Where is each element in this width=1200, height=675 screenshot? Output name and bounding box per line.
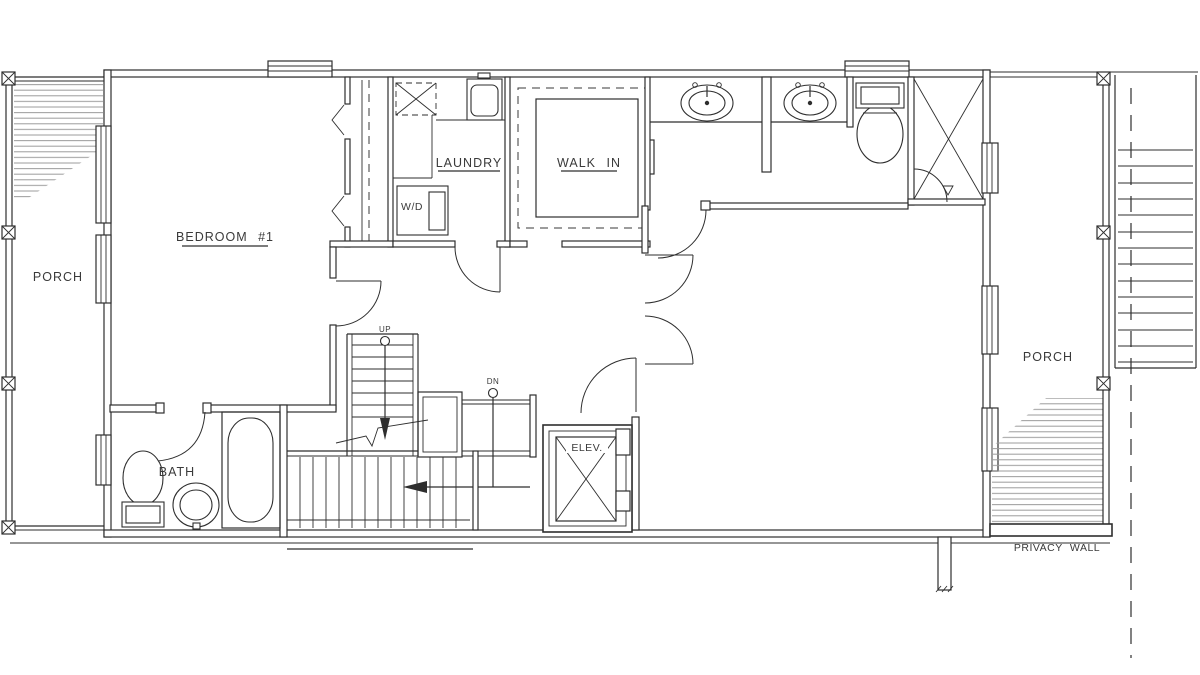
porch-post-icon: [2, 72, 15, 85]
porch-post-icon: [2, 377, 15, 390]
toilet-icon: [856, 83, 904, 163]
door-swing-arc: [658, 210, 706, 258]
porch-deck-hatch: [14, 84, 103, 201]
shower-icon: [908, 77, 985, 205]
window-icon: [96, 435, 111, 485]
drain-icon: [943, 186, 953, 195]
porch-railing: [6, 77, 12, 527]
bifold-door-icon: [332, 105, 344, 135]
stair-treads-upper: [352, 345, 413, 417]
laundry-sink-icon: [467, 73, 502, 120]
door-swing-arc: [158, 412, 205, 461]
left-porch-label: PORCH: [33, 270, 83, 284]
dn-marker: [489, 389, 498, 398]
window-icon: [845, 61, 909, 77]
porch-post-icon: [2, 521, 15, 534]
laundry-label: LAUNDRY: [436, 156, 503, 170]
door-swing-arc: [645, 255, 693, 303]
vanity-partition: [762, 77, 771, 172]
laundry-room: LAUNDRY W/D: [393, 73, 510, 292]
door-swing-arc: [581, 358, 636, 413]
porch-deck-hatch: [992, 398, 1103, 523]
stair-direction-arrow: [380, 418, 390, 440]
door-swing-arc: [336, 281, 381, 326]
elevator: ELEV.: [543, 417, 639, 532]
window-icon: [96, 235, 111, 303]
window-icon: [982, 143, 998, 193]
walk-in-label: WALK IN: [557, 156, 621, 170]
stair-treads: [1118, 150, 1193, 362]
shower-door-arc: [914, 169, 947, 202]
left-porch: PORCH: [2, 72, 104, 534]
stairs: UP DN: [287, 325, 536, 530]
master-bedroom-doors: [581, 255, 693, 413]
bathtub-icon: [222, 412, 280, 528]
elevator-door-jamb: [616, 491, 630, 511]
porch-post-icon: [2, 226, 15, 239]
porch-post-icon: [1097, 72, 1110, 85]
right-porch-label: PORCH: [1023, 350, 1073, 364]
dn-label: DN: [487, 377, 500, 386]
sink-icon: [784, 83, 836, 121]
right-porch: PORCH PRIVACY WALL: [936, 72, 1112, 592]
privacy-wall: [990, 524, 1112, 536]
door-swing-arc: [645, 316, 693, 364]
door-swing-arc: [455, 247, 500, 292]
up-label: UP: [379, 325, 391, 334]
bifold-door-icon: [332, 196, 344, 226]
porch-post-icon: [1097, 377, 1110, 390]
wd-label: W/D: [401, 201, 423, 213]
sink-icon: [681, 83, 733, 121]
window-icon: [982, 286, 998, 354]
cabinet-icon: [396, 83, 436, 115]
wall-return: [938, 537, 951, 590]
walk-in-closet: WALK IN: [510, 77, 654, 247]
porch-railing: [1103, 77, 1109, 525]
elevator-door-jamb: [616, 429, 630, 455]
bedroom1-label: BEDROOM #1: [176, 230, 274, 244]
pedestal-sink-icon: [173, 483, 219, 529]
floor-plan-drawing: PORCH BEDROOM #1: [0, 0, 1200, 675]
stair-landing: [418, 392, 462, 457]
stair-treads-lower: [300, 457, 456, 528]
bath: BATH: [110, 403, 336, 537]
toilet-icon: [122, 451, 164, 527]
floor-plan: PORCH BEDROOM #1: [0, 0, 1200, 675]
master-bath: [642, 77, 985, 258]
elevator-label: ELEV.: [571, 442, 602, 454]
window-icon: [268, 61, 332, 77]
bath-label: BATH: [159, 465, 195, 479]
washer-dryer-icon: W/D: [397, 186, 448, 235]
up-marker: [381, 337, 390, 346]
bedroom-1: BEDROOM #1: [176, 77, 393, 410]
porch-post-icon: [1097, 226, 1110, 239]
exterior-stairs: [1115, 75, 1196, 658]
privacy-wall-label: PRIVACY WALL: [1014, 542, 1100, 554]
stair-direction-arrow: [403, 481, 427, 493]
window-icon: [96, 126, 111, 223]
